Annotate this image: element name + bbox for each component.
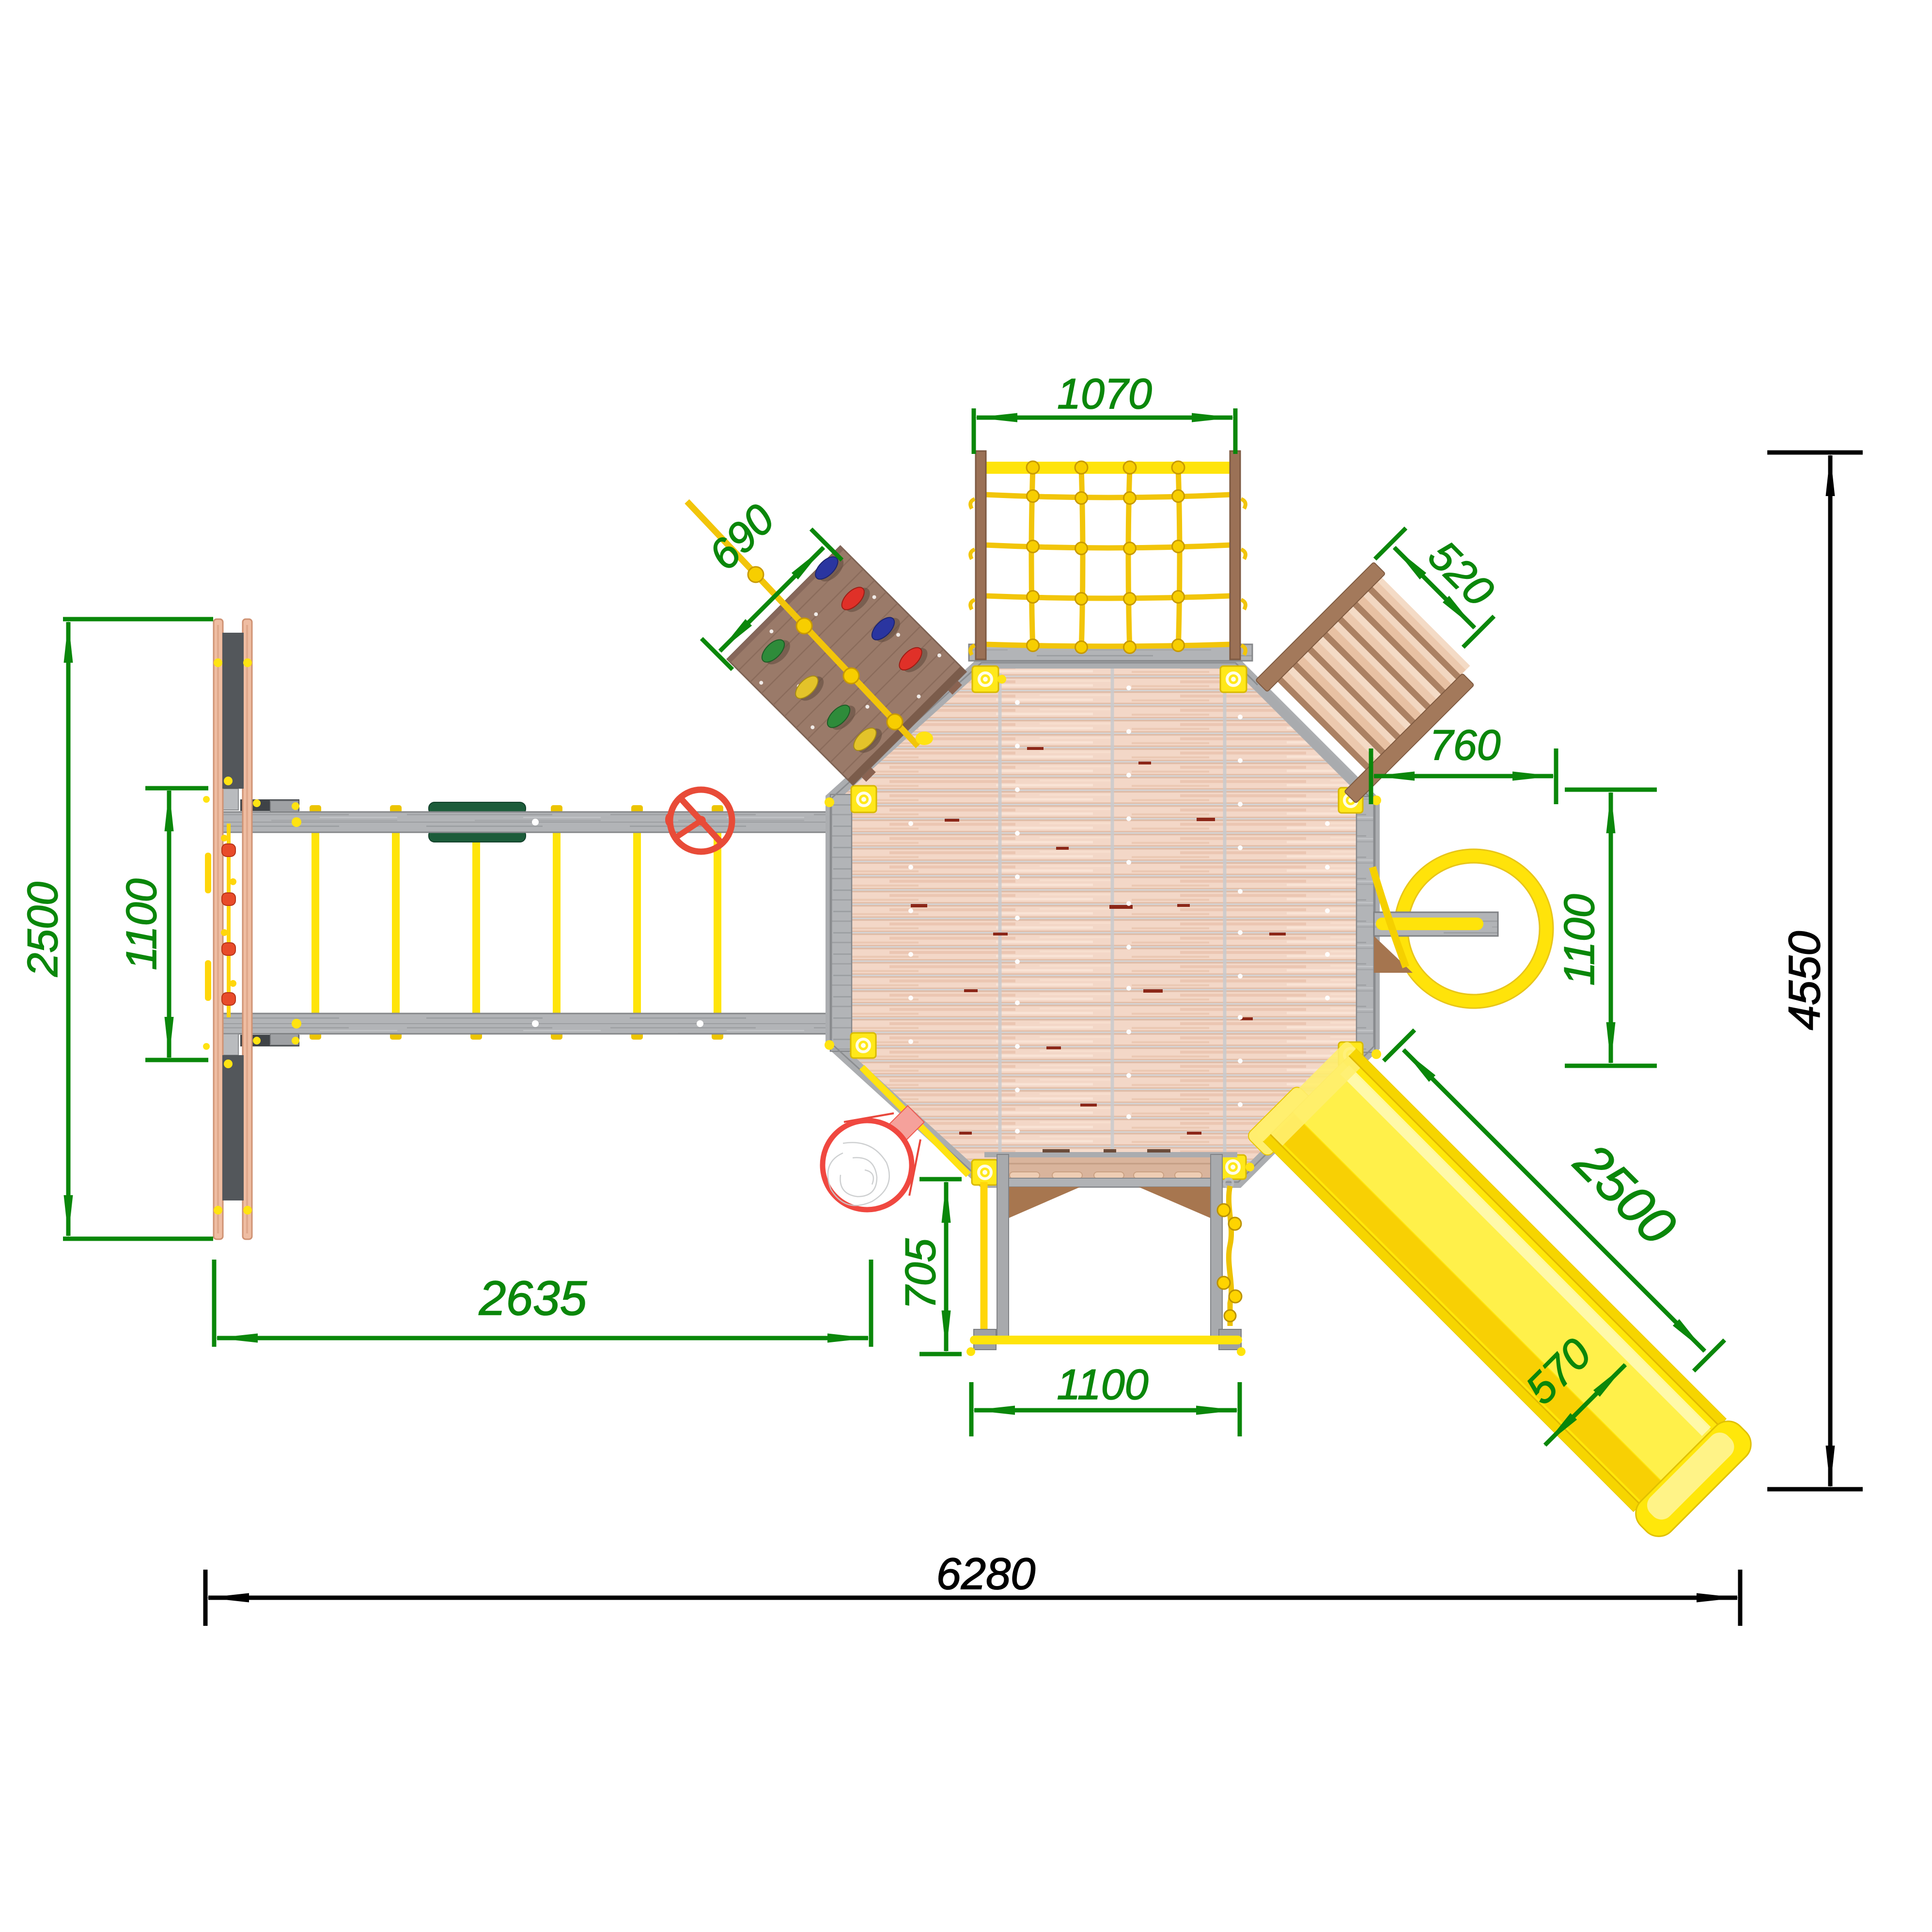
svg-text:2500: 2500 xyxy=(18,882,66,977)
svg-text:6280: 6280 xyxy=(936,1549,1036,1599)
svg-text:1100: 1100 xyxy=(117,878,165,970)
svg-text:4550: 4550 xyxy=(1780,931,1829,1030)
svg-text:1070: 1070 xyxy=(1057,370,1152,418)
svg-text:760: 760 xyxy=(1430,721,1501,769)
svg-text:1100: 1100 xyxy=(1057,1360,1148,1408)
svg-text:1100: 1100 xyxy=(1555,894,1603,985)
svg-text:705: 705 xyxy=(896,1238,944,1310)
svg-text:2635: 2635 xyxy=(479,1271,587,1325)
